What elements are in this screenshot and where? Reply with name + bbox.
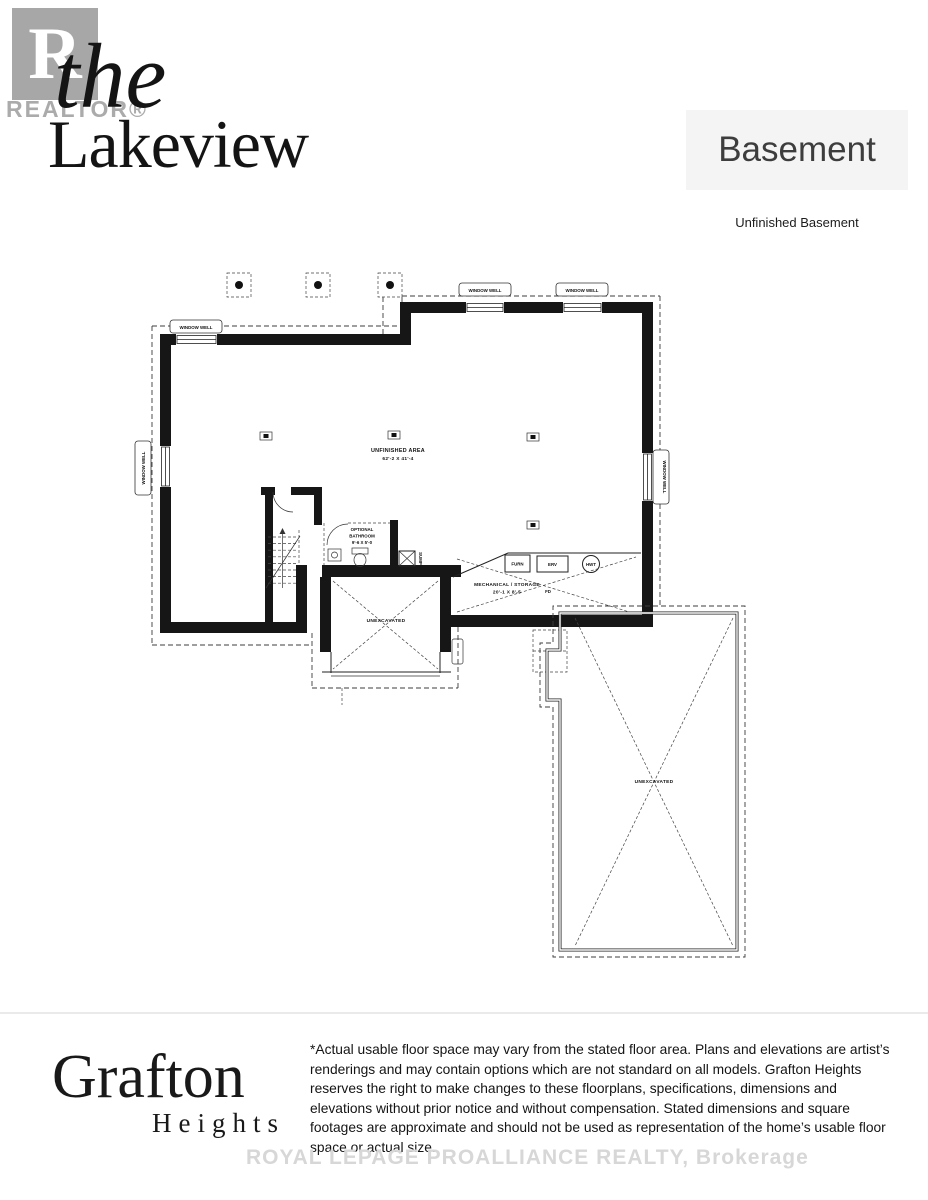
deck-posts	[227, 273, 402, 297]
bathroom-sink	[328, 549, 341, 561]
floor-drain-label: FD	[545, 589, 551, 594]
bathroom-label-2: BATHROOM	[349, 534, 375, 539]
garage-unexcavated-label: UNEXCAVATED	[635, 779, 674, 785]
window-well-label: WINDOW WELL	[566, 288, 599, 293]
mechanical-label: MECHANICAL / STORAGE	[474, 582, 540, 588]
sump-pit: SUMP	[399, 551, 423, 566]
unfinished-area-label: UNFINISHED AREA 62'-2 X 41'-4	[371, 448, 425, 462]
unfinished-area-text: UNFINISHED AREA	[371, 448, 425, 454]
floor-plan: WINDOW WELL WINDOW WELL WINDOW WELL WIND…	[0, 0, 928, 1010]
builder-logo-suffix: Heights	[152, 1108, 285, 1139]
garage-unexcavated: UNEXCAVATED	[540, 606, 745, 957]
bathroom-label-1: OPTIONAL	[351, 527, 374, 532]
toilet-bowl	[354, 554, 366, 567]
erv-label: ERV	[548, 562, 557, 567]
optional-bathroom: OPTIONAL BATHROOM 9'-6 X 5'-0	[324, 523, 390, 567]
porch-unexcavated-label: UNEXCAVATED	[367, 618, 406, 624]
mechanical-room: FURN ERV HWT MECHANICAL / STORAGE 20'-1 …	[453, 553, 641, 614]
stair-door-arc	[273, 492, 293, 512]
perimeter-dashed-lines	[152, 296, 660, 705]
bathroom-door-arc	[327, 524, 348, 545]
brokerage-watermark: ROYAL LEPAGE PROALLIANCE REALTY, Brokera…	[246, 1146, 809, 1170]
disclaimer-text: *Actual usable floor space may vary from…	[310, 1040, 898, 1157]
hwt-label: HWT	[586, 562, 596, 567]
mechanical-dims: 20'-1 X 8'-5	[493, 590, 521, 596]
sump-label: SUMP	[418, 552, 423, 565]
window-well-label: WINDOW WELL	[662, 461, 667, 494]
furnace-label: FURN	[511, 562, 523, 567]
toilet-tank	[352, 548, 368, 554]
footer-divider	[0, 1012, 928, 1014]
builder-logo: Grafton	[52, 1046, 245, 1108]
walls	[160, 302, 653, 652]
bathroom-dims: 9'-6 X 5'-0	[352, 540, 373, 545]
unfinished-area-dims: 62'-2 X 41'-4	[382, 456, 413, 462]
window-well-label: WINDOW WELL	[469, 288, 502, 293]
interior-posts	[260, 431, 539, 529]
window-well-label: WINDOW WELL	[141, 451, 146, 484]
window-well-label: WINDOW WELL	[180, 325, 213, 330]
